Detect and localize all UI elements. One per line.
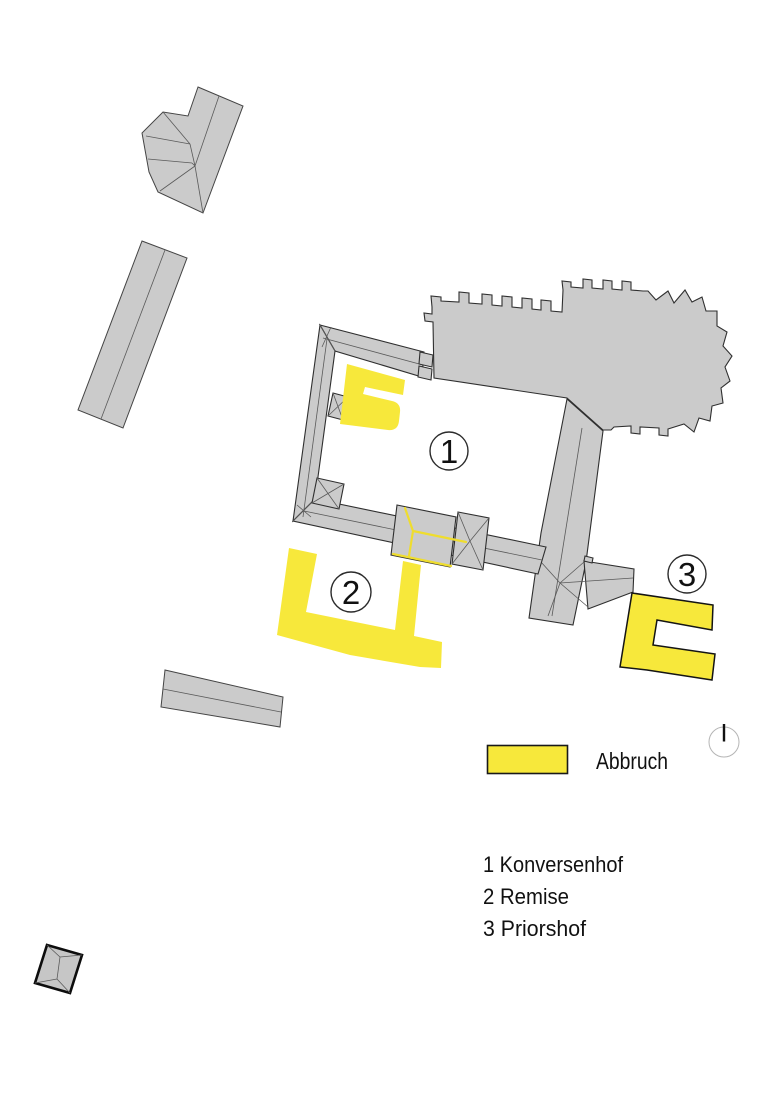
marker-1: 1 [430,432,468,470]
marker-3: 3 [668,555,706,593]
legend-swatch [488,746,568,774]
key-list: 1 Konversenhof 2 Remise 3 Priorshof [483,852,624,941]
building-southwest-small [35,945,82,993]
legend: Abbruch [488,746,669,775]
building-northwest [142,87,243,213]
marker-2: 2 [331,572,371,612]
marker-2-label: 2 [342,574,360,611]
gate-building [391,505,456,567]
marker-1-label: 1 [440,433,458,470]
key-item-priorshof: 3 Priorshof [483,916,587,941]
legend-label: Abbruch [596,748,668,774]
demolition-area-priorshof [620,593,715,680]
north-indicator-icon [709,724,739,757]
marker-3-label: 3 [678,556,696,593]
key-item-konversenhof: 1 Konversenhof [483,852,624,877]
church-connector [418,352,433,380]
demolition-area-courtyard-f-shape [340,364,405,430]
abbey-complex [277,279,732,680]
building-west-mid [161,670,283,727]
site-plan: 1 2 3 Abbruch 1 Konversenhof 2 Remise 3 … [0,0,780,1102]
key-item-remise: 2 Remise [483,884,569,909]
building-west-long [78,241,187,428]
